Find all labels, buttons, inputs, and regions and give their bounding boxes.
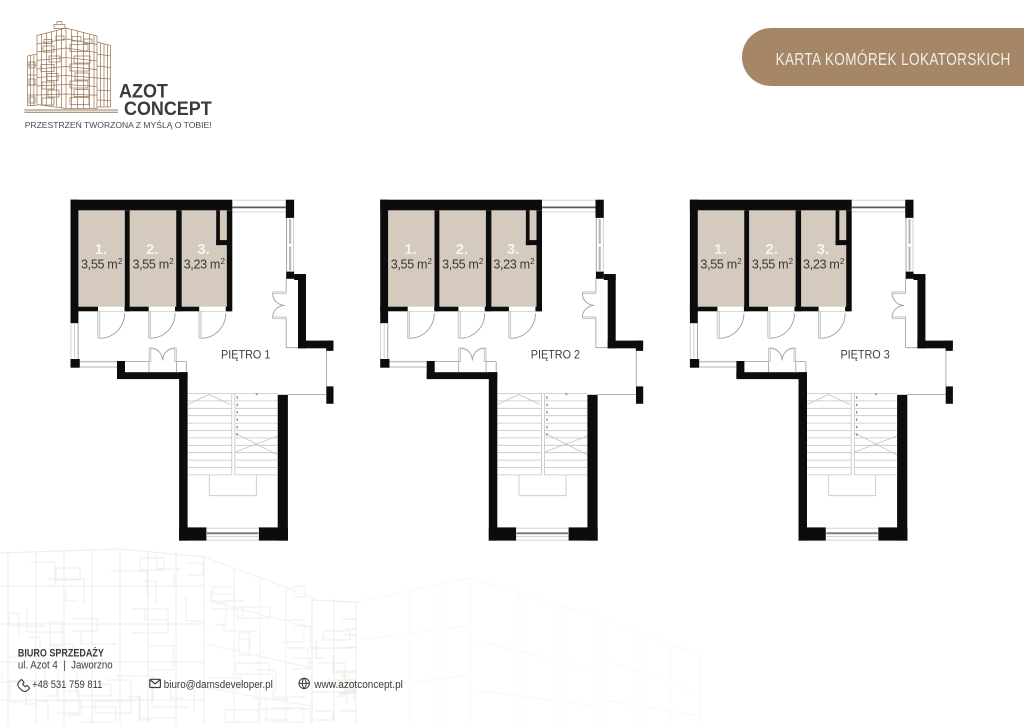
svg-text:+48 531 759 811: +48 531 759 811 xyxy=(32,679,102,691)
svg-text:BIURO SPRZEDAŻY: BIURO SPRZEDAŻY xyxy=(18,646,105,659)
svg-text:PIĘTRO 3: PIĘTRO 3 xyxy=(840,348,890,362)
svg-text:biuro@damsdeveloper.pl: biuro@damsdeveloper.pl xyxy=(164,679,273,691)
svg-text:www.azotconcept.pl: www.azotconcept.pl xyxy=(313,679,402,691)
svg-text:ul. Azot 4 | Jaworzno: ul. Azot 4 | Jaworzno xyxy=(18,659,113,671)
svg-text:PIĘTRO 1: PIĘTRO 1 xyxy=(221,348,270,362)
svg-text:PIĘTRO 2: PIĘTRO 2 xyxy=(531,348,580,362)
